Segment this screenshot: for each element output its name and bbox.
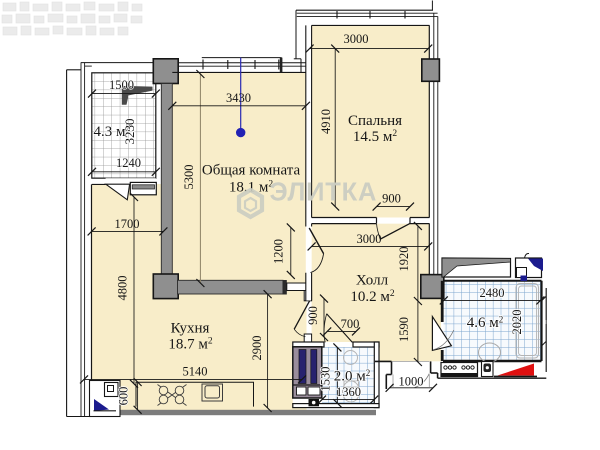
svg-text:5300: 5300 xyxy=(182,165,196,190)
svg-text:Кухня: Кухня xyxy=(171,321,210,337)
svg-text:2020: 2020 xyxy=(510,310,524,335)
svg-text:ЭЛИТКА: ЭЛИТКА xyxy=(270,179,378,207)
svg-text:2480: 2480 xyxy=(480,286,505,300)
svg-text:1530: 1530 xyxy=(318,367,332,392)
svg-text:700: 700 xyxy=(341,317,360,331)
svg-text:4.6 м2: 4.6 м2 xyxy=(467,315,504,332)
svg-text:1500: 1500 xyxy=(109,78,134,92)
svg-text:1240: 1240 xyxy=(116,156,141,170)
svg-text:2900: 2900 xyxy=(250,336,264,361)
svg-text:Спальня: Спальня xyxy=(348,113,402,129)
svg-text:3000: 3000 xyxy=(357,232,382,246)
svg-text:900: 900 xyxy=(306,306,320,325)
svg-text:3430: 3430 xyxy=(226,91,251,105)
svg-text:1920: 1920 xyxy=(397,247,411,272)
svg-text:Холл: Холл xyxy=(356,273,389,289)
svg-text:1590: 1590 xyxy=(397,317,411,342)
svg-text:4910: 4910 xyxy=(319,109,333,134)
svg-text:10.2 м2: 10.2 м2 xyxy=(350,289,395,305)
svg-text:1000: 1000 xyxy=(399,375,424,389)
svg-text:5140: 5140 xyxy=(183,365,208,379)
svg-text:14.5 м2: 14.5 м2 xyxy=(353,129,398,145)
svg-text:3000: 3000 xyxy=(344,32,369,46)
svg-text:1200: 1200 xyxy=(272,239,286,264)
svg-text:900: 900 xyxy=(382,191,401,205)
svg-text:600: 600 xyxy=(116,387,130,406)
svg-text:2.0 м2: 2.0 м2 xyxy=(334,368,371,385)
svg-text:3230: 3230 xyxy=(122,119,137,145)
svg-text:18.1 м2: 18.1 м2 xyxy=(229,180,274,196)
svg-text:4800: 4800 xyxy=(116,276,130,301)
svg-text:1700: 1700 xyxy=(115,217,140,231)
svg-text:18.7 м2: 18.7 м2 xyxy=(168,337,213,353)
svg-text:1360: 1360 xyxy=(336,385,361,399)
svg-text:Общая комната: Общая комната xyxy=(202,163,301,179)
